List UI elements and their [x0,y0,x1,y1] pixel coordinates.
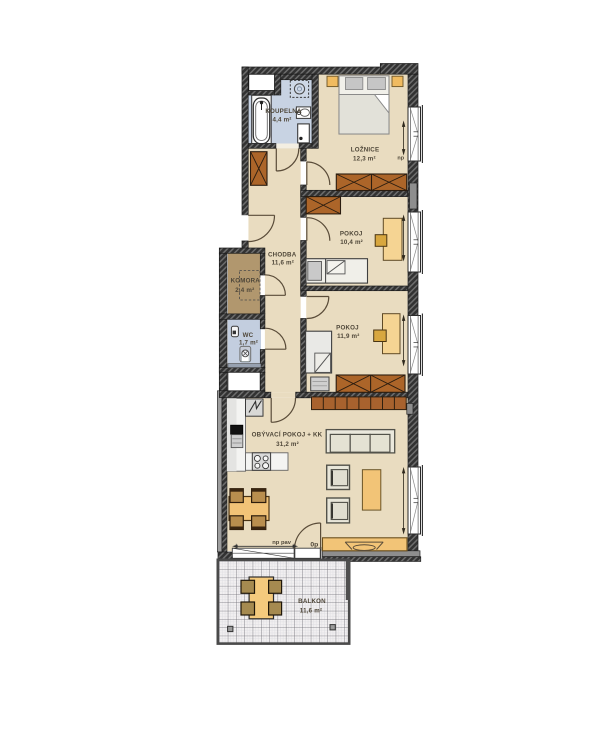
svg-text:LOŽNICE: LOŽNICE [351,146,380,154]
svg-text:12,3 m²: 12,3 m² [353,155,376,162]
svg-text:11,9 m²: 11,9 m² [337,333,359,340]
svg-text:10,4 m²: 10,4 m² [340,239,363,246]
svg-text:WC: WC [243,332,254,339]
svg-text:POKOJ: POKOJ [336,324,359,331]
svg-text:11,6 m²: 11,6 m² [300,607,322,614]
svg-text:KOMORA: KOMORA [231,278,261,285]
svg-text:CHODBA: CHODBA [268,251,297,258]
svg-text:31,2 m²: 31,2 m² [276,441,299,448]
svg-text:np pav: np pav [272,540,291,546]
svg-text:0p: 0p [310,541,318,548]
svg-text:BALKON: BALKON [298,598,326,605]
svg-text:OBÝVACÍ POKOJ + KK: OBÝVACÍ POKOJ + KK [252,431,323,439]
svg-text:POKOJ: POKOJ [340,230,363,237]
svg-text:1,7 m²: 1,7 m² [239,340,258,347]
svg-text:11,6 m²: 11,6 m² [272,260,294,267]
svg-text:4,4 m²: 4,4 m² [272,117,291,124]
svg-text:KOUPELNA: KOUPELNA [265,108,302,115]
svg-text:2,4 m²: 2,4 m² [235,287,254,294]
svg-text:np: np [397,156,404,162]
